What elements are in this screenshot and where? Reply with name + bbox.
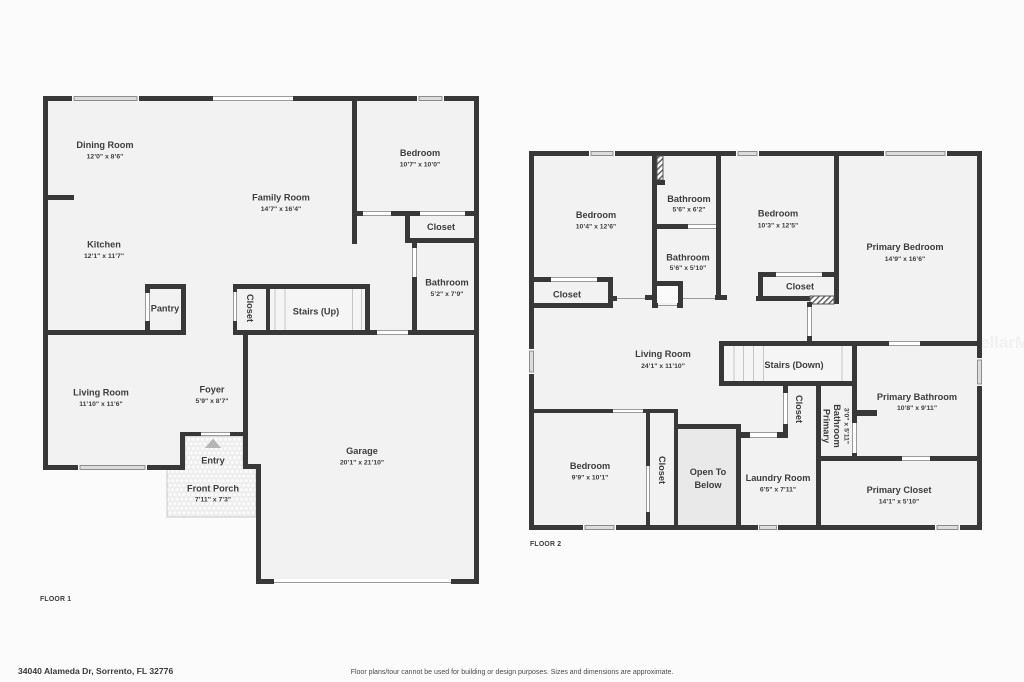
svg-text:Dining Room: Dining Room bbox=[76, 140, 133, 150]
svg-text:Bedroom: Bedroom bbox=[400, 148, 440, 158]
svg-text:Living Room: Living Room bbox=[635, 349, 691, 359]
svg-text:Entry: Entry bbox=[201, 456, 225, 466]
svg-text:12’0" x 8’6": 12’0" x 8’6" bbox=[87, 154, 124, 161]
svg-text:5’9" x 8’7": 5’9" x 8’7" bbox=[196, 398, 229, 405]
svg-text:5’6" x 5’10": 5’6" x 5’10" bbox=[670, 265, 707, 272]
svg-text:Bathroom: Bathroom bbox=[425, 278, 468, 288]
svg-text:Bedroom: Bedroom bbox=[576, 210, 616, 220]
svg-text:10’3" x 12’5": 10’3" x 12’5" bbox=[758, 223, 798, 230]
svg-text:11’10" x 11’6": 11’10" x 11’6" bbox=[79, 401, 123, 408]
svg-text:Primary: Primary bbox=[822, 409, 832, 444]
svg-text:Foyer: Foyer bbox=[199, 385, 224, 395]
svg-text:Family Room: Family Room bbox=[252, 193, 310, 203]
svg-text:FLOOR 1: FLOOR 1 bbox=[40, 596, 71, 603]
svg-text:6’5" x 7’11": 6’5" x 7’11" bbox=[760, 487, 796, 494]
svg-text:5’6" x 6’2": 5’6" x 6’2" bbox=[673, 207, 706, 214]
svg-text:Garage: Garage bbox=[346, 446, 378, 456]
svg-text:10’7" x 10’0": 10’7" x 10’0" bbox=[400, 162, 440, 169]
svg-text:Closet: Closet bbox=[794, 395, 804, 423]
svg-text:7’11" x 7’3": 7’11" x 7’3" bbox=[195, 497, 231, 504]
svg-text:Open To: Open To bbox=[690, 467, 727, 477]
svg-text:Closet: Closet bbox=[786, 282, 814, 292]
svg-text:3’0" x 5’11": 3’0" x 5’11" bbox=[843, 408, 850, 444]
svg-text:Bedroom: Bedroom bbox=[570, 461, 610, 471]
svg-text:Closet: Closet bbox=[553, 290, 581, 300]
svg-text:Primary Bathroom: Primary Bathroom bbox=[877, 392, 957, 402]
svg-text:Front Porch: Front Porch bbox=[187, 484, 239, 494]
svg-text:10’8" x 9’11": 10’8" x 9’11" bbox=[897, 405, 937, 412]
svg-text:10’4" x 12’6": 10’4" x 12’6" bbox=[576, 224, 616, 231]
svg-text:Living Room: Living Room bbox=[73, 388, 129, 398]
svg-text:14’9" x 16’6": 14’9" x 16’6" bbox=[885, 256, 925, 263]
svg-text:9’9" x 10’1": 9’9" x 10’1" bbox=[572, 475, 609, 482]
svg-text:5’2" x 7’9": 5’2" x 7’9" bbox=[431, 291, 464, 298]
svg-text:Floor plans/tour cannot be use: Floor plans/tour cannot be used for buil… bbox=[351, 669, 674, 676]
svg-text:Laundry Room: Laundry Room bbox=[746, 473, 811, 483]
svg-text:Bathroom: Bathroom bbox=[832, 404, 842, 447]
svg-text:20’1" x 21’10": 20’1" x 21’10" bbox=[340, 460, 384, 467]
svg-text:Closet: Closet bbox=[657, 456, 667, 484]
svg-text:34040 Alameda Dr, Sorrento, FL: 34040 Alameda Dr, Sorrento, FL 32776 bbox=[18, 666, 173, 676]
svg-text:Bathroom: Bathroom bbox=[666, 253, 709, 263]
svg-text:Stairs (Down): Stairs (Down) bbox=[764, 360, 823, 370]
svg-text:Kitchen: Kitchen bbox=[87, 240, 121, 250]
svg-text:Closet: Closet bbox=[245, 294, 255, 322]
svg-text:14’1" x 5’10": 14’1" x 5’10" bbox=[879, 499, 919, 506]
svg-text:Below: Below bbox=[694, 480, 722, 490]
svg-text:Pantry: Pantry bbox=[151, 304, 180, 314]
svg-text:Bathroom: Bathroom bbox=[667, 194, 710, 204]
svg-text:24’1" x 11’10": 24’1" x 11’10" bbox=[641, 363, 685, 370]
svg-text:12’1" x 11’7": 12’1" x 11’7" bbox=[84, 253, 124, 260]
svg-text:Bedroom: Bedroom bbox=[758, 209, 798, 219]
svg-text:14’7" x 16’4": 14’7" x 16’4" bbox=[261, 206, 301, 213]
svg-text:Stairs (Up): Stairs (Up) bbox=[293, 307, 339, 317]
svg-text:Primary Bedroom: Primary Bedroom bbox=[866, 242, 943, 252]
svg-text:Primary Closet: Primary Closet bbox=[867, 485, 932, 495]
svg-text:FLOOR 2: FLOOR 2 bbox=[530, 541, 561, 548]
svg-text:Closet: Closet bbox=[427, 222, 455, 232]
